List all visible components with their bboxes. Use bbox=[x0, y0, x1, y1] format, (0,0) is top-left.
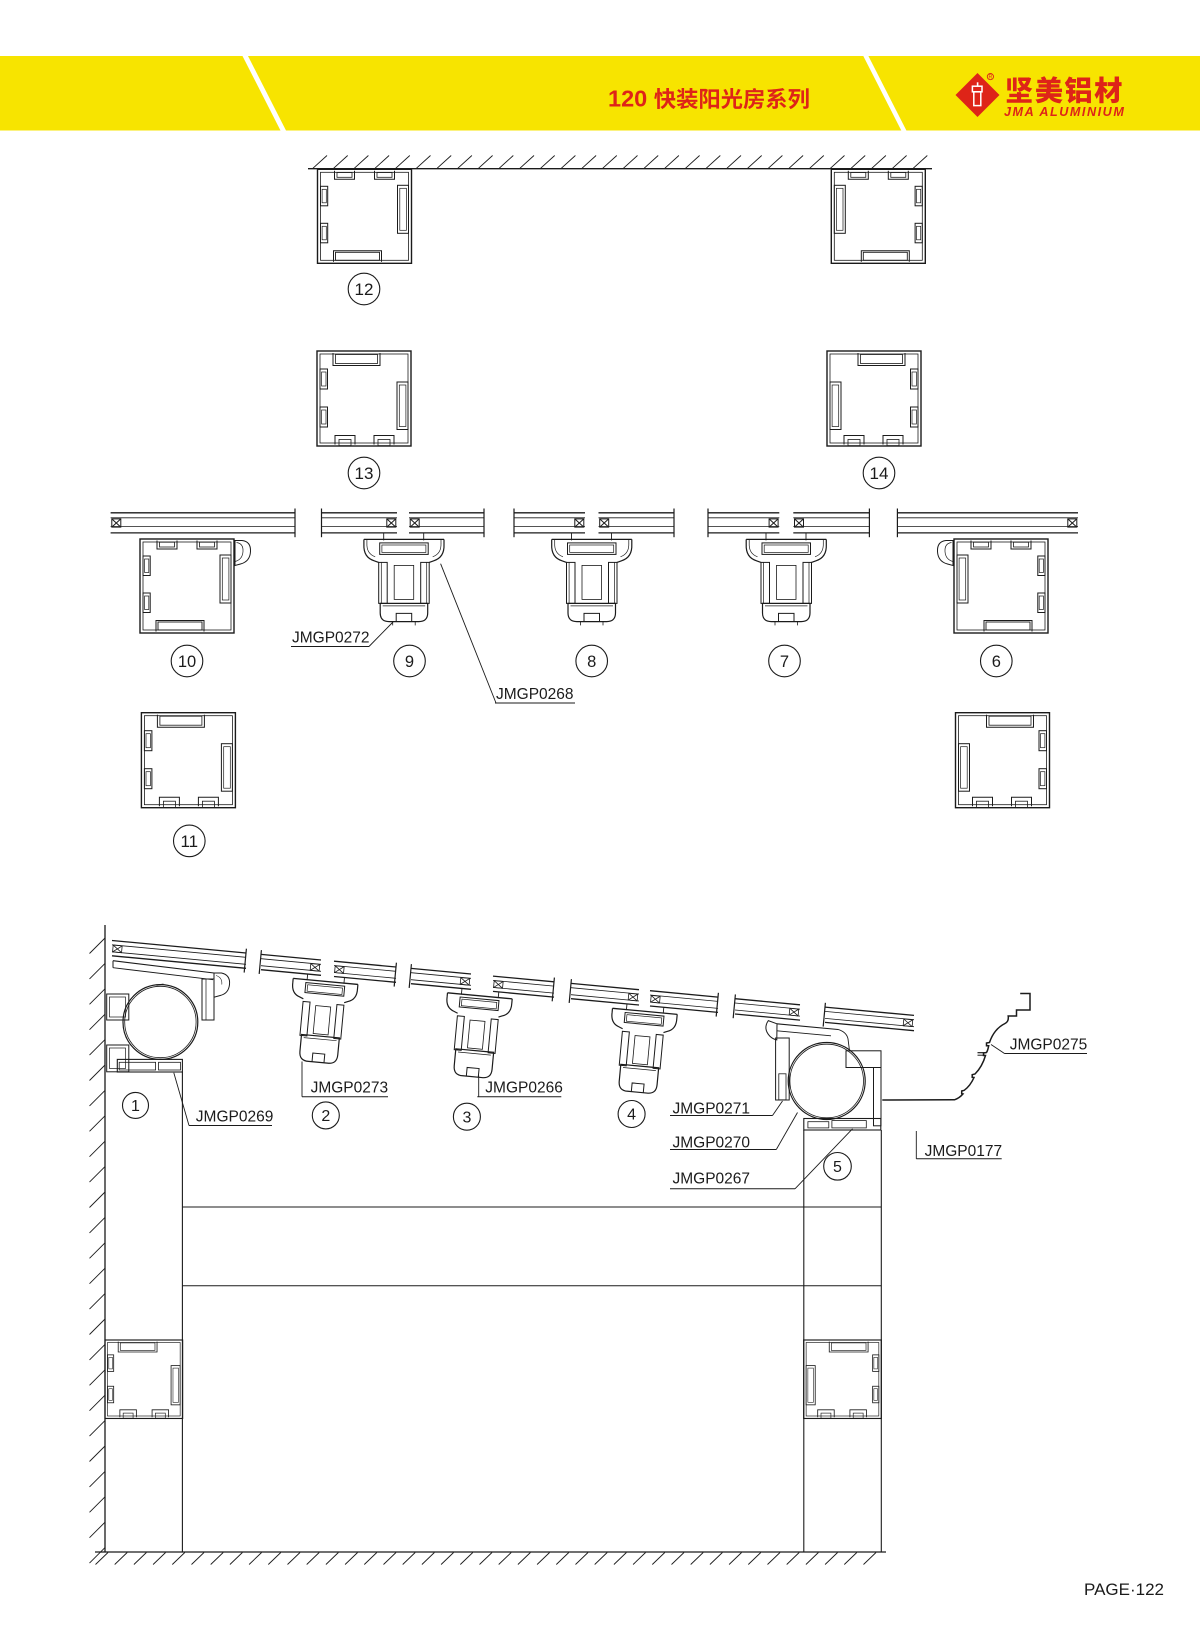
svg-text:120: 120 bbox=[608, 86, 647, 112]
svg-text:PAGE·122: PAGE·122 bbox=[1084, 1580, 1164, 1599]
svg-text:JMGP0271: JMGP0271 bbox=[673, 1101, 751, 1118]
svg-text:JMGP0177: JMGP0177 bbox=[925, 1143, 1003, 1160]
svg-text:JMGP0270: JMGP0270 bbox=[673, 1134, 751, 1151]
svg-text:JMGP0267: JMGP0267 bbox=[673, 1171, 751, 1188]
svg-text:JMGP0269: JMGP0269 bbox=[196, 1109, 274, 1126]
svg-text:13: 13 bbox=[355, 464, 374, 483]
svg-text:R: R bbox=[989, 75, 993, 81]
svg-text:JMGP0273: JMGP0273 bbox=[311, 1080, 389, 1097]
svg-text:3: 3 bbox=[462, 1109, 471, 1126]
svg-text:5: 5 bbox=[833, 1159, 842, 1176]
svg-text:7: 7 bbox=[780, 653, 789, 671]
svg-text:9: 9 bbox=[405, 653, 414, 671]
svg-text:JMGP0275: JMGP0275 bbox=[1010, 1037, 1088, 1054]
svg-text:JMA ALUMINIUM: JMA ALUMINIUM bbox=[1004, 105, 1125, 119]
svg-text:10: 10 bbox=[178, 653, 196, 671]
svg-text:JMGP0266: JMGP0266 bbox=[485, 1080, 563, 1097]
svg-text:8: 8 bbox=[587, 653, 596, 671]
svg-text:1: 1 bbox=[131, 1098, 140, 1115]
svg-text:4: 4 bbox=[627, 1107, 636, 1124]
svg-text:2: 2 bbox=[321, 1108, 330, 1125]
svg-text:14: 14 bbox=[870, 464, 889, 483]
svg-text:12: 12 bbox=[355, 280, 374, 299]
svg-text:11: 11 bbox=[180, 832, 198, 851]
svg-text:JMGP0272: JMGP0272 bbox=[292, 630, 370, 647]
svg-text:6: 6 bbox=[992, 653, 1001, 671]
svg-text:JMGP0268: JMGP0268 bbox=[496, 686, 574, 703]
